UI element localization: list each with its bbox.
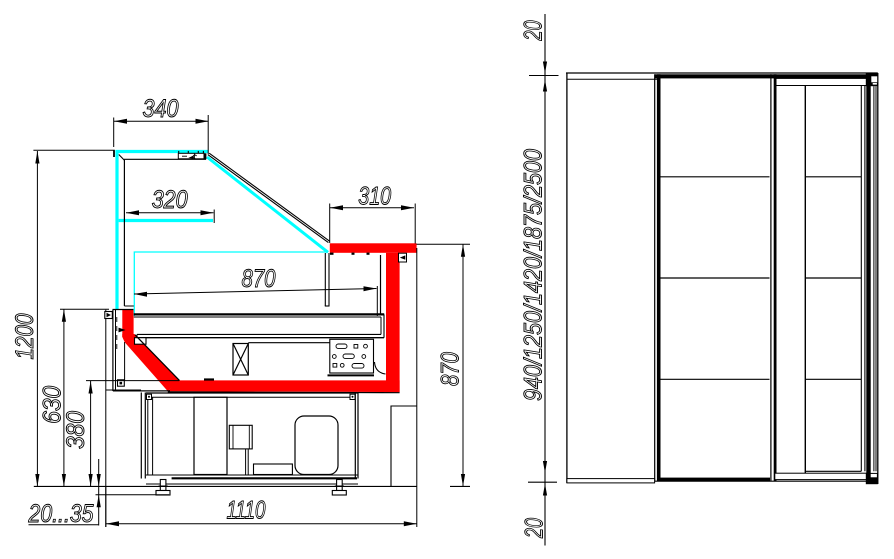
svg-text:380: 380 <box>62 411 90 449</box>
svg-text:940/1250/1420/1875/2500: 940/1250/1420/1875/2500 <box>520 149 548 401</box>
svg-text:310: 310 <box>358 182 391 210</box>
svg-text:870: 870 <box>242 265 276 293</box>
svg-text:20: 20 <box>521 518 549 539</box>
svg-text:1110: 1110 <box>227 497 266 525</box>
svg-text:20...35: 20...35 <box>28 500 94 528</box>
svg-text:870: 870 <box>437 352 465 386</box>
svg-text:320: 320 <box>152 186 188 214</box>
svg-text:340: 340 <box>143 95 179 123</box>
svg-text:1200: 1200 <box>11 313 39 359</box>
svg-text:20: 20 <box>520 20 548 41</box>
